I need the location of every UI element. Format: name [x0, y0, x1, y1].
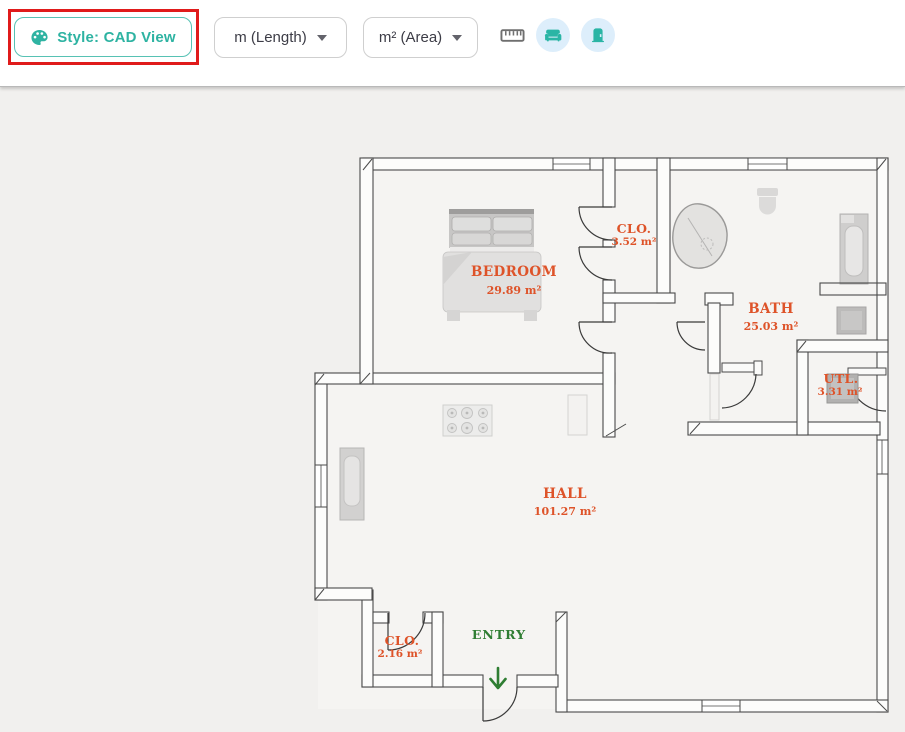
shower-column: [840, 214, 868, 284]
window: [748, 158, 787, 170]
door-toggle-button[interactable]: [581, 18, 615, 52]
window: [877, 440, 888, 474]
style-button[interactable]: Style: CAD View: [14, 17, 192, 57]
room-label-bedroom: BEDROOM: [471, 264, 557, 280]
area-unit-value: m² (Area): [379, 29, 442, 46]
style-button-label: Style: CAD View: [57, 29, 176, 46]
length-unit-value: m (Length): [234, 29, 307, 46]
window: [702, 700, 740, 712]
floorplan-drawing: BEDROOM 29.89 m² CLO. 3.52 m² BATH 25.03…: [0, 0, 905, 732]
room-label-closet2: CLO.: [385, 633, 420, 648]
room-area-hall: 101.27 m²: [534, 505, 597, 518]
ruler-button[interactable]: [500, 27, 525, 44]
room-area-closet1: 3.52 m²: [612, 236, 657, 248]
bathtub: [673, 204, 727, 268]
door-icon: [588, 25, 608, 45]
room-area-closet2: 2.16 m²: [378, 648, 423, 660]
window: [553, 158, 590, 170]
furniture-toggle-button[interactable]: [536, 18, 570, 52]
ruler-icon: [500, 27, 525, 44]
floorplan-canvas[interactable]: BEDROOM 29.89 m² CLO. 3.52 m² BATH 25.03…: [0, 88, 905, 732]
room-label-hall: HALL: [543, 486, 587, 502]
toolbar: Style: CAD View m (Length) m² (Area): [0, 0, 905, 87]
chevron-down-icon: [317, 35, 327, 41]
chevron-down-icon: [452, 35, 462, 41]
palette-icon: [30, 28, 49, 47]
room-area-bedroom: 29.89 m²: [487, 284, 542, 297]
room-label-closet1: CLO.: [617, 221, 652, 236]
hall-corridor-open-door: [568, 395, 587, 435]
length-unit-dropdown[interactable]: m (Length): [214, 17, 347, 58]
room-label-entry: ENTRY: [472, 627, 526, 642]
room-label-bath: BATH: [748, 301, 794, 317]
room-area-utility: 3.31 m²: [818, 386, 863, 398]
kitchen-counter: [340, 448, 364, 520]
window: [315, 465, 327, 507]
room-area-bath: 25.03 m²: [744, 320, 799, 333]
sink: [837, 307, 866, 334]
sofa-icon: [543, 25, 563, 45]
tool-icon-group: [500, 18, 615, 52]
stove: [443, 405, 492, 436]
floorplan-app: Style: CAD View m (Length) m² (Area): [0, 0, 905, 732]
area-unit-dropdown[interactable]: m² (Area): [363, 17, 478, 58]
room-label-utility: UTL.: [824, 371, 859, 386]
